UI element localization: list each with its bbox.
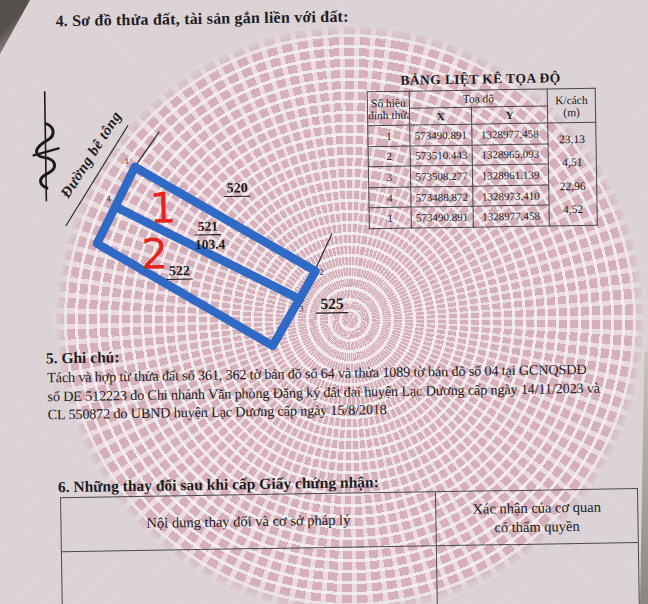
vertex-id: 3	[368, 166, 410, 187]
coord-x: 573490.891	[410, 124, 472, 146]
changes-table-header: Nội dung thay đổi và cơ sở pháp lý Xác n…	[61, 489, 638, 552]
coord-y: 1328965.093	[472, 144, 548, 166]
changes-table: Nội dung thay đổi và cơ sở pháp lý Xác n…	[60, 488, 640, 604]
col-header-toado: Toạ độ	[409, 89, 547, 108]
coord-x: 573508.277	[410, 165, 472, 187]
vertex-id: 1	[369, 207, 411, 228]
changes-col2-line1: Xác nhận của cơ quan	[472, 497, 601, 518]
changes-col2-header: Xác nhận của cơ quan có thẩm quyền	[436, 489, 638, 545]
col-header-vertex-line2: đỉnh thửa	[368, 108, 409, 121]
coord-y: 1328973.410	[473, 185, 549, 207]
distance-value: 4,52	[549, 203, 596, 216]
section5-note-text: Tách và hợp từ thửa đất số 361, 362 tờ b…	[47, 359, 648, 424]
coord-x: 573510.443	[410, 145, 472, 167]
vertex-label-1: 1	[125, 156, 129, 166]
section5-heading: 5. Ghi chú:	[46, 348, 120, 367]
changes-empty-cell-right	[437, 543, 639, 604]
north-arrow-icon	[32, 91, 61, 201]
vertex-id: 4	[369, 187, 411, 208]
parcel-521-area: 103.4	[195, 237, 226, 252]
changes-table-empty-row	[62, 543, 639, 604]
col-header-kcach: K/cách (m)	[547, 88, 596, 123]
col-header-x: X	[409, 107, 471, 125]
parcel-521-label: 521	[198, 219, 219, 234]
parcel-525-label: 525	[320, 295, 344, 312]
coord-y: 1328977.458	[473, 205, 549, 227]
coord-x: 573488.872	[411, 186, 473, 208]
coord-y: 1328961.139	[472, 164, 548, 186]
scanned-certificate-photo: 4. Sơ đồ thửa đất, tài sản gắn liền với …	[0, 0, 648, 604]
coordinate-table: Số hiệu đỉnh thửa Toạ độ K/cách (m) X Y …	[367, 88, 598, 230]
section4-title: 4. Sơ đồ thửa đất, tài sản gắn liền với …	[55, 8, 348, 31]
vertex-id: 1	[368, 125, 410, 146]
col-header-kcach-line2: (m)	[548, 105, 595, 118]
red-label-2: 2	[141, 229, 169, 278]
underline	[316, 313, 348, 314]
vertex-id: 2	[368, 146, 410, 167]
changes-empty-cell-left	[62, 546, 438, 604]
parcel-diagram: Đường bê tông 1 4 2 3 1 2	[17, 84, 361, 359]
distance-value: 4,51	[549, 156, 596, 169]
distance-cell: 23,13 4,51 22,96 4,52	[548, 122, 598, 226]
distance-value: 22,96	[549, 179, 596, 192]
changes-col1-header: Nội dung thay đổi và cơ sở pháp lý	[61, 492, 437, 551]
coord-y: 1328977.458	[472, 123, 548, 145]
col-header-vertex: Số hiệu đỉnh thửa	[367, 91, 410, 126]
parcel-520-label: 520	[227, 180, 248, 195]
vertex-label-4: 4	[106, 193, 111, 203]
col-header-y: Y	[471, 106, 547, 124]
col-header-vertex-line1: Số hiệu	[368, 96, 409, 109]
parcel-522-label: 522	[169, 263, 190, 278]
coordinate-table-title: BẢNG LIỆT KÊ TỌA ĐỘ	[366, 70, 594, 90]
vertex-label-3: 3	[299, 303, 303, 313]
red-label-1: 1	[149, 183, 177, 232]
coordinate-table-block: BẢNG LIỆT KÊ TỌA ĐỘ Số hiệu đỉnh thửa To…	[366, 70, 596, 230]
road-label: Đường bê tông	[57, 108, 125, 201]
col-header-kcach-line1: K/cách	[548, 93, 595, 106]
parcel-outline	[96, 164, 317, 348]
certificate-page: 4. Sơ đồ thửa đất, tài sản gắn liền với …	[0, 0, 648, 604]
distance-value: 23,13	[548, 132, 595, 145]
coord-x: 573490.891	[411, 207, 473, 229]
changes-col2-line2: có thẩm quyền	[494, 517, 580, 537]
vertex-label-2: 2	[319, 267, 323, 277]
